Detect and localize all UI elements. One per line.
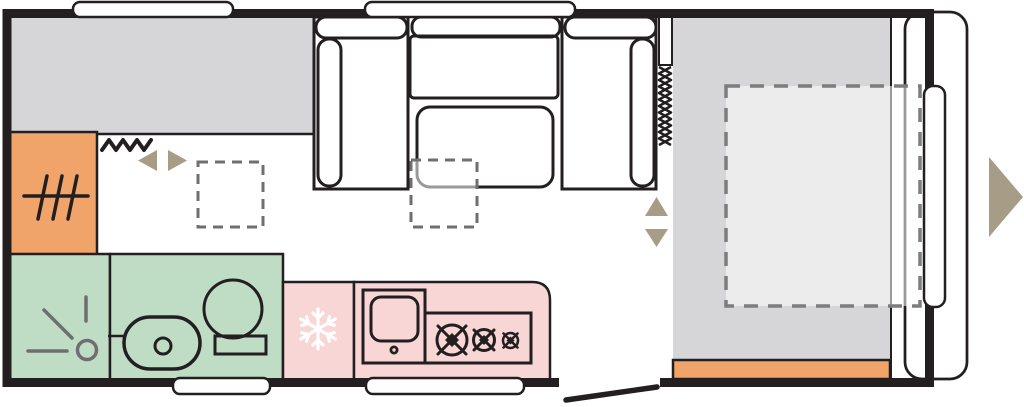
bathroom <box>7 254 283 383</box>
floor-footprint-table <box>411 160 477 227</box>
dinette-right-seat <box>562 17 656 189</box>
entry-door-swing <box>566 387 657 400</box>
curtain-zigzag-icon <box>102 140 151 150</box>
concertina-door-icon <box>659 67 671 145</box>
bed-extension-outline <box>726 86 920 306</box>
slide-left-arrow-icon <box>138 150 157 171</box>
dinette-right-backrest <box>565 17 656 38</box>
dinette-left-seat <box>314 17 408 189</box>
bed-front-trim <box>673 360 890 379</box>
floorplan-canvas <box>0 0 1024 407</box>
window-bottom-left <box>173 378 270 394</box>
shower-room <box>7 254 110 383</box>
window-top-center <box>365 2 575 17</box>
bed-down-arrow-icon <box>645 229 668 247</box>
dinette-middle-seat <box>410 36 558 98</box>
dinette <box>314 17 656 189</box>
floor-footprint-left <box>198 162 263 227</box>
dinette-middle-backrest <box>412 17 560 37</box>
entry-arrow-icon <box>989 157 1023 237</box>
slide-right-arrow-icon <box>168 150 187 171</box>
dinette-left-backrest <box>316 17 407 38</box>
dinette-right-armrest <box>631 39 654 186</box>
window-bottom-center <box>366 378 524 394</box>
partition-orange-segment <box>659 14 672 65</box>
side-bed-area <box>7 13 314 134</box>
wardrobe <box>7 132 97 256</box>
dinette-left-armrest <box>318 39 341 186</box>
window-front <box>924 86 945 307</box>
bed-up-arrow-icon <box>645 197 668 216</box>
window-top-left <box>73 2 233 17</box>
